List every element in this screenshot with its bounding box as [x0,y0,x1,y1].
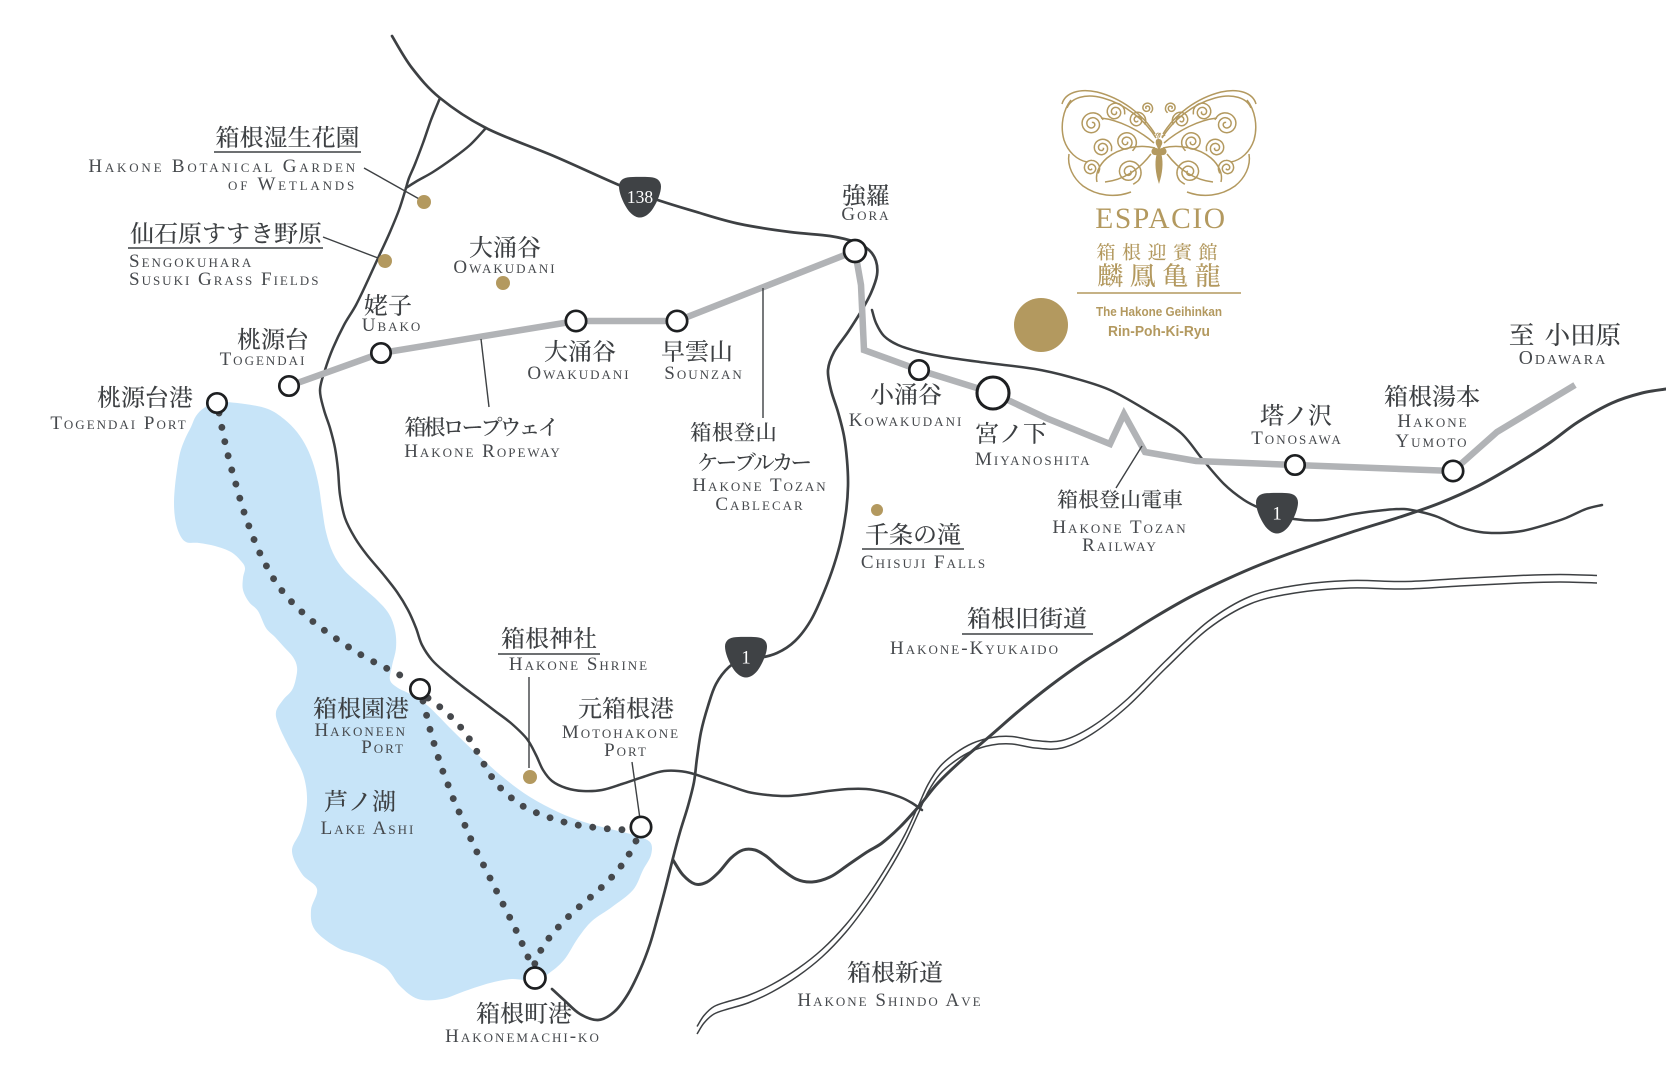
svg-text:138: 138 [627,187,654,207]
svg-text:Port: Port [604,740,648,761]
svg-text:Hakone Tozan: Hakone Tozan [692,475,827,496]
svg-text:Lake Ashi: Lake Ashi [321,818,416,839]
svg-text:Hakone Shrine: Hakone Shrine [509,654,649,675]
svg-text:Kowakudani: Kowakudani [849,410,964,431]
svg-text:of Wetlands: of Wetlands [228,174,357,195]
svg-text:Sounzan: Sounzan [664,363,743,384]
svg-text:Chisuji Falls: Chisuji Falls [861,552,987,573]
svg-text:Hakonemachi-ko: Hakonemachi-ko [445,1026,601,1047]
svg-text:Hakone: Hakone [1397,411,1468,432]
svg-text:Owakudani: Owakudani [527,363,630,384]
svg-text:1: 1 [1272,504,1282,525]
svg-text:Ubako: Ubako [362,315,423,336]
svg-text:Port: Port [361,737,405,758]
svg-text:Cablecar: Cablecar [715,494,804,515]
svg-text:Susuki Grass Fields: Susuki Grass Fields [129,269,320,290]
svg-text:The Hakone Geihinkan: The Hakone Geihinkan [1096,304,1222,319]
svg-text:ESPACIO: ESPACIO [1095,203,1226,235]
svg-text:Railway: Railway [1082,535,1158,556]
svg-text:Hakone-Kyukaido: Hakone-Kyukaido [890,638,1060,659]
svg-text:Yumoto: Yumoto [1395,431,1468,452]
svg-text:1: 1 [741,648,751,669]
svg-text:Owakudani: Owakudani [453,257,556,278]
svg-text:Hakone Ropeway: Hakone Ropeway [404,441,562,462]
svg-text:Miyanoshita: Miyanoshita [975,449,1092,470]
svg-text:Hakone Shindo Ave: Hakone Shindo Ave [797,990,982,1011]
svg-text:Tonosawa: Tonosawa [1251,428,1343,449]
svg-text:Togendai Port: Togendai Port [50,413,187,434]
svg-text:Rin-Poh-Ki-Ryu: Rin-Poh-Ki-Ryu [1108,323,1210,340]
svg-text:Gora: Gora [841,204,890,225]
svg-text:Togendai: Togendai [220,349,307,370]
svg-text:Odawara: Odawara [1519,348,1607,369]
